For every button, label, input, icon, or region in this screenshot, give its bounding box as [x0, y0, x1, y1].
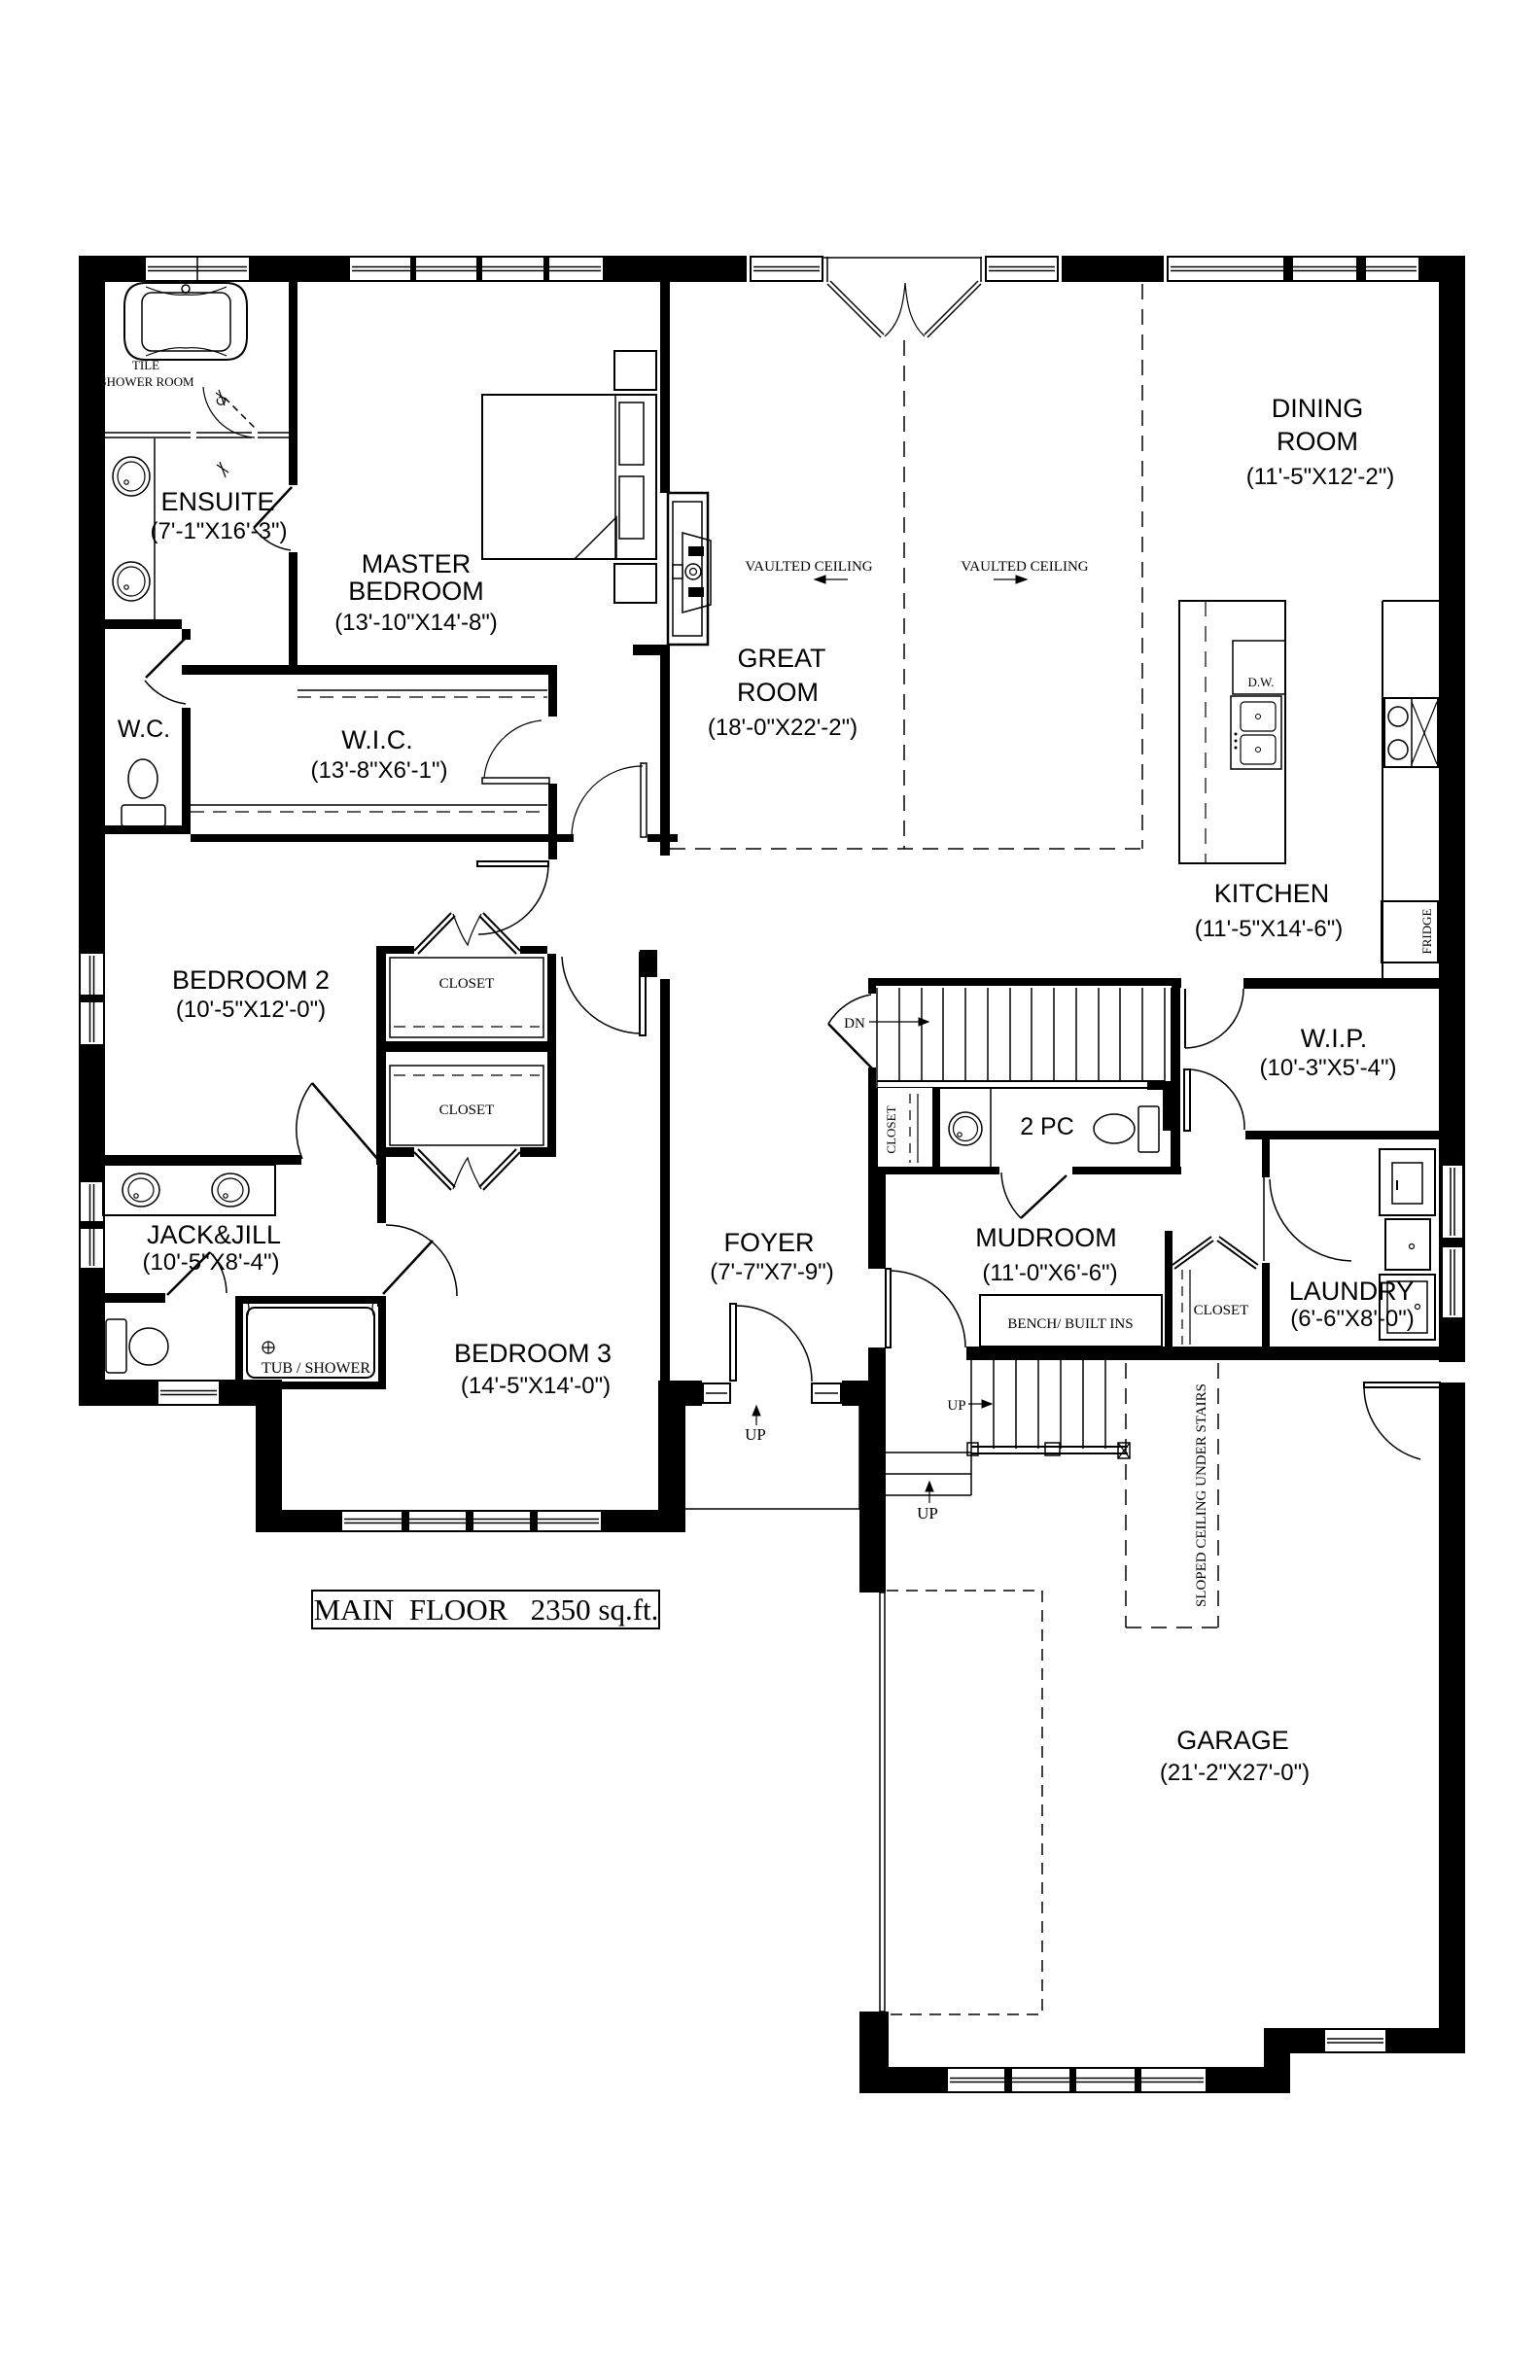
svg-text:JACK&JILL: JACK&JILL — [147, 1220, 281, 1249]
svg-text:FOYER: FOYER — [723, 1228, 814, 1257]
svg-text:ENSUITE: ENSUITE — [160, 487, 274, 516]
svg-text:VAULTED CEILING: VAULTED CEILING — [961, 559, 1088, 575]
svg-text:ROOM: ROOM — [1277, 427, 1358, 456]
svg-text:(10'-3"X5'-4"): (10'-3"X5'-4") — [1260, 1055, 1397, 1081]
svg-text:(11'-5"X12'-2"): (11'-5"X12'-2") — [1246, 464, 1394, 490]
svg-text:(13'-8"X6'-1"): (13'-8"X6'-1") — [311, 757, 448, 784]
svg-text:MASTER: MASTER — [362, 549, 472, 578]
svg-text:W.I.P.: W.I.P. — [1301, 1024, 1368, 1053]
svg-text:SHOWER ROOM: SHOWER ROOM — [99, 374, 194, 389]
svg-text:LAUNDRY: LAUNDRY — [1289, 1277, 1415, 1306]
svg-text:VAULTED CEILING: VAULTED CEILING — [745, 559, 872, 575]
svg-text:GREAT: GREAT — [737, 644, 825, 673]
svg-text:FRIDGE: FRIDGE — [1419, 908, 1434, 954]
svg-text:KITCHEN: KITCHEN — [1214, 879, 1330, 908]
svg-text:DN: DN — [844, 1016, 865, 1032]
svg-text:GARAGE: GARAGE — [1176, 1726, 1289, 1755]
svg-text:CLOSET: CLOSET — [884, 1105, 898, 1153]
svg-text:BENCH/ BUILT INS: BENCH/ BUILT INS — [1007, 1316, 1133, 1332]
svg-text:(7'-7"X7'-9"): (7'-7"X7'-9") — [710, 1259, 834, 1285]
svg-text:W.C.: W.C. — [118, 716, 170, 743]
svg-text:(21'-2"X27'-0"): (21'-2"X27'-0") — [1160, 1760, 1310, 1786]
svg-text:SLOPED CEILING UNDER STAIRS: SLOPED CEILING UNDER STAIRS — [1194, 1383, 1209, 1607]
svg-text:BEDROOM 2: BEDROOM 2 — [172, 965, 330, 995]
svg-text:CLOSET: CLOSET — [1194, 1303, 1249, 1318]
svg-text:2 PC: 2 PC — [1020, 1113, 1074, 1140]
svg-text:(6'-6"X8'-0"): (6'-6"X8'-0") — [1290, 1306, 1415, 1332]
svg-text:CLOSET: CLOSET — [439, 976, 495, 992]
svg-text:BEDROOM 3: BEDROOM 3 — [454, 1339, 612, 1368]
svg-text:(13'-10"X14'-8"): (13'-10"X14'-8") — [334, 610, 498, 636]
svg-text:BEDROOM: BEDROOM — [348, 577, 484, 606]
svg-text:ROOM: ROOM — [737, 678, 819, 707]
svg-text:MAIN FLOOR 2350 sq.ft.: MAIN FLOOR 2350 sq.ft. — [314, 1592, 659, 1627]
svg-text:TUB / SHOWER: TUB / SHOWER — [262, 1360, 370, 1377]
svg-text:DINING: DINING — [1272, 394, 1364, 423]
svg-text:(10'-5"X12'-0"): (10'-5"X12'-0") — [176, 997, 326, 1023]
svg-text:CLOSET: CLOSET — [439, 1102, 495, 1118]
svg-text:D.W.: D.W. — [1248, 675, 1275, 689]
svg-text:(10'-5"X8'-4"): (10'-5"X8'-4") — [143, 1249, 280, 1276]
svg-text:(11'-0"X6'-6"): (11'-0"X6'-6") — [982, 1260, 1117, 1286]
svg-text:(11'-5"X14'-6"): (11'-5"X14'-6") — [1195, 916, 1343, 942]
svg-text:UP: UP — [947, 1398, 965, 1414]
svg-text:MUDROOM: MUDROOM — [975, 1223, 1116, 1252]
svg-text:W.I.C.: W.I.C. — [341, 725, 413, 754]
svg-text:TILE: TILE — [132, 358, 159, 372]
svg-text:(14'-5"X14'-0"): (14'-5"X14'-0") — [461, 1373, 611, 1399]
svg-text:(7'-1"X16'-3"): (7'-1"X16'-3") — [151, 518, 288, 544]
svg-text:UP: UP — [745, 1425, 766, 1444]
svg-text:UP: UP — [917, 1504, 938, 1522]
svg-text:(18'-0"X22'-2"): (18'-0"X22'-2") — [708, 715, 857, 741]
